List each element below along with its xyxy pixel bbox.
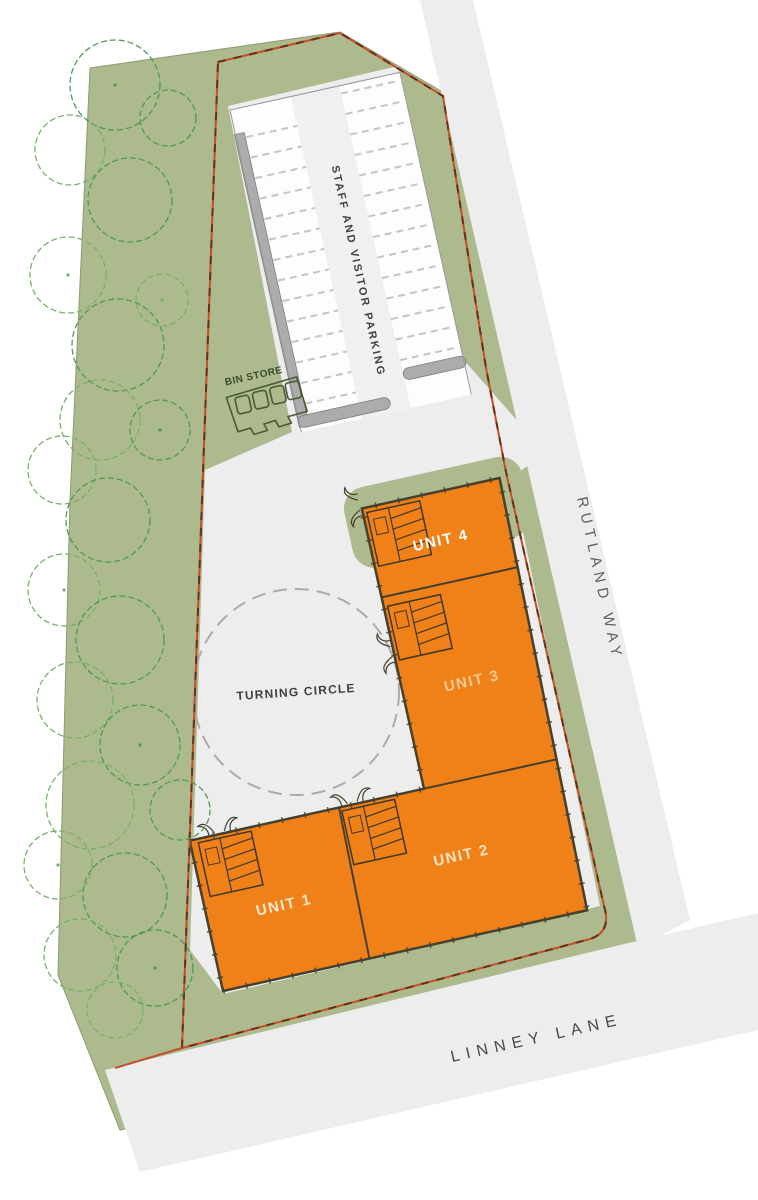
tree-trunk-dot <box>66 273 69 276</box>
tree-trunk-dot <box>138 743 141 746</box>
tree-trunk-dot <box>158 428 161 431</box>
site-plan-drawing: STAFF AND VISITOR PARKING BIN STORE TURN… <box>0 0 758 1200</box>
site-plan-page: STAFF AND VISITOR PARKING BIN STORE TURN… <box>0 0 758 1200</box>
tree-trunk-dot <box>160 298 163 301</box>
tree-trunk-dot <box>153 966 156 969</box>
tree-trunk-dot <box>56 863 59 866</box>
tree-trunk-dot <box>113 83 116 86</box>
tree-trunk-dot <box>62 588 65 591</box>
